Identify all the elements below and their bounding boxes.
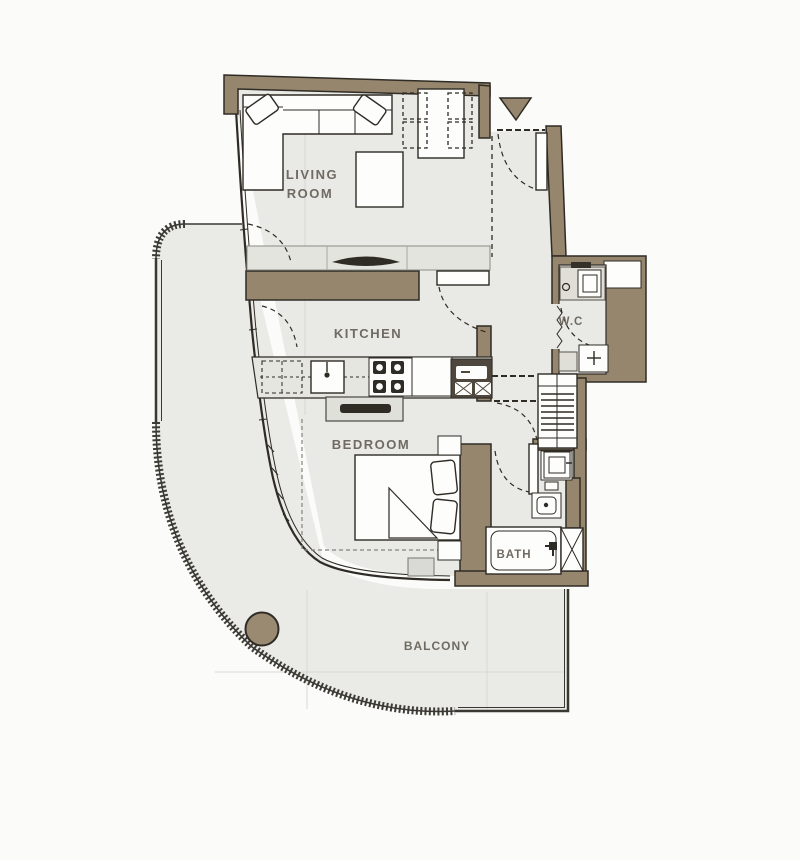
wc-sink-basin (583, 275, 597, 292)
burner-ring (394, 364, 401, 371)
bed-pillow (430, 499, 457, 534)
nightstand (438, 541, 461, 560)
bed-pillow (430, 460, 457, 495)
kitchen-faucet-base (324, 372, 329, 377)
coffee-table (356, 152, 403, 207)
utility-sink (456, 366, 487, 379)
service-shaft (604, 261, 641, 288)
ac-unit (408, 558, 434, 576)
kitchen-label: KITCHEN (334, 326, 402, 341)
burner-ring (394, 383, 401, 390)
toilet-paper-holder (545, 482, 558, 490)
burner-ring (376, 364, 383, 371)
balcony-label: BALCONY (404, 639, 470, 653)
bath-label: BATH (496, 549, 531, 561)
bath-sink-basin (549, 457, 565, 473)
wall-living-kitchen (246, 271, 419, 300)
bath-door-leaf (529, 444, 538, 494)
wall-bath-plumbing (566, 478, 580, 528)
wc-cabinet (559, 352, 577, 371)
wall-entry-left-jamb (479, 85, 490, 138)
closet-hangers-icon (541, 394, 574, 430)
bath-toilet-drain (544, 503, 548, 507)
bathtub-faucet-base (549, 542, 557, 550)
balcony-column (246, 613, 279, 646)
nightstand (438, 436, 461, 455)
floor-plan-page: { "title": "Two-room apartment floor pla… (0, 0, 800, 860)
wc-label: W.C (559, 316, 584, 328)
entry-arrow-icon (500, 98, 531, 120)
floor-plan: W.C LIVING ROOM (0, 0, 800, 860)
living-room-label-line2: ROOM (287, 186, 333, 201)
dresser-tv (340, 404, 391, 413)
burner-ring (376, 383, 383, 390)
fridge (412, 357, 452, 396)
bedroom-label: BEDROOM (332, 437, 410, 452)
entry-door-leaf (536, 133, 547, 190)
living-room-label-line1: LIVING (286, 167, 338, 182)
kitchen-door-leaf (437, 271, 489, 285)
wc-mirror (571, 262, 591, 268)
